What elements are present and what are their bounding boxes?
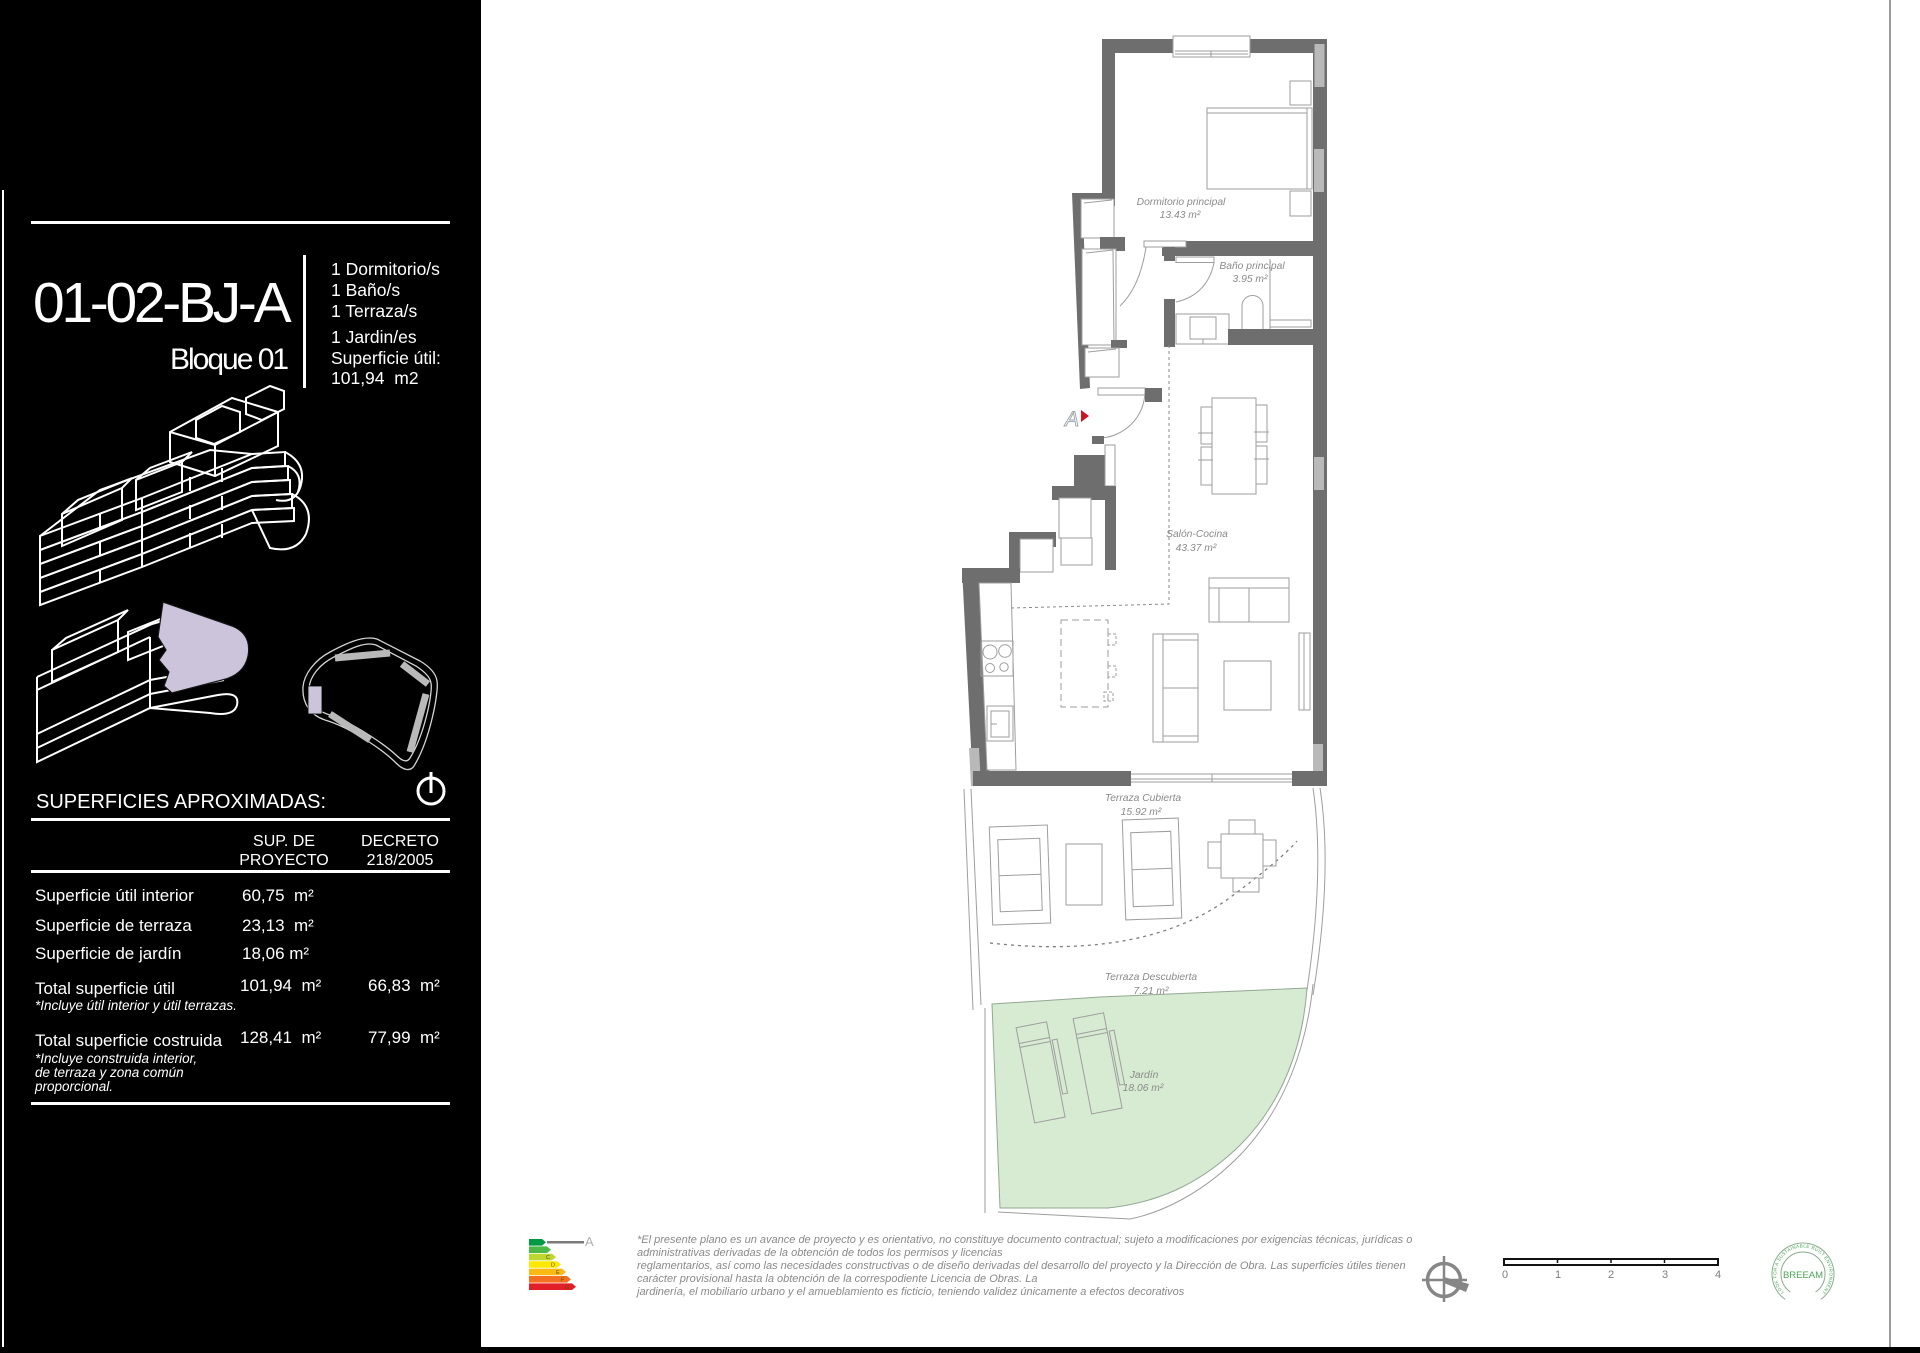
svg-text:A: A [1063,408,1079,431]
svg-text:15.92 m²: 15.92 m² [1121,807,1162,818]
svg-text:E: E [556,1270,560,1276]
svg-text:43.37 m²: 43.37 m² [1176,543,1217,554]
svg-text:carácter provisional hasta la: carácter provisional hasta la obtención … [637,1273,1038,1285]
svg-text:Baño principal: Baño principal [1219,261,1285,272]
svg-text:1: 1 [1555,1269,1561,1281]
svg-text:Terraza Descubierta: Terraza Descubierta [1105,972,1198,983]
svg-text:C: C [546,1255,550,1261]
svg-text:18.06 m²: 18.06 m² [1123,1083,1164,1094]
svg-text:13.43 m²: 13.43 m² [1160,210,1201,221]
svg-text:Dormitorio principal: Dormitorio principal [1137,197,1226,208]
svg-text:3: 3 [1662,1269,1668,1281]
svg-text:A: A [585,1234,594,1249]
svg-text:D: D [551,1263,555,1269]
svg-text:Terraza Cubierta: Terraza Cubierta [1105,793,1182,804]
svg-text:2: 2 [1608,1269,1614,1281]
svg-text:3.95 m²: 3.95 m² [1233,274,1268,285]
svg-text:Salón-Cocina: Salón-Cocina [1166,529,1228,540]
svg-text:Jardín: Jardín [1129,1070,1159,1081]
svg-text:G: G [565,1285,569,1291]
svg-text:jardinería, el mobiliario urba: jardinería, el mobiliario urbano y el am… [635,1286,1185,1298]
svg-text:0: 0 [1502,1269,1508,1281]
svg-text:reglamentarios, así como las n: reglamentarios, así como las necesidades… [637,1260,1406,1272]
svg-text:4: 4 [1715,1269,1721,1281]
svg-text:BREEAM: BREEAM [1783,1270,1823,1281]
svg-text:administrativas derivadas de l: administrativas derivadas de la obtenció… [637,1247,1003,1259]
svg-text:*El presente plano es un avanc: *El presente plano es un avance de proye… [637,1234,1412,1246]
